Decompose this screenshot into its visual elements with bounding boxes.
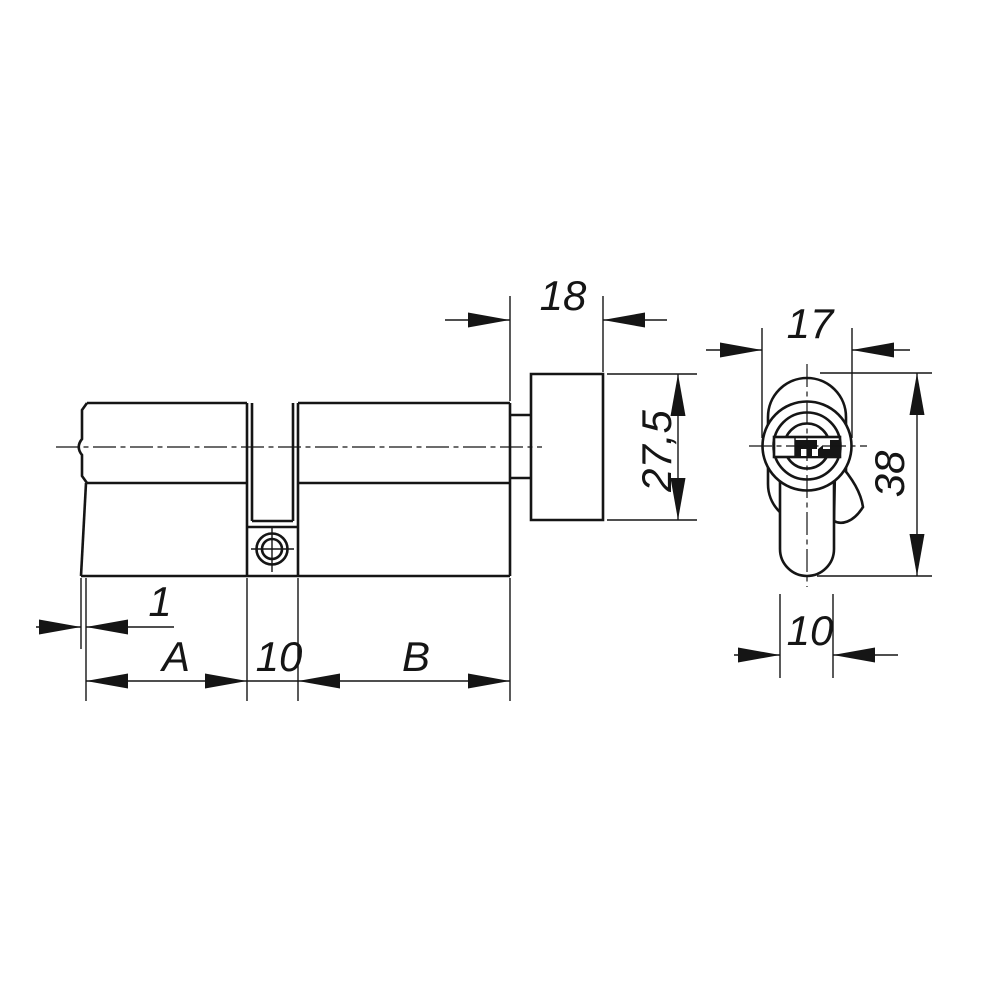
arrowhead [298, 674, 340, 689]
side-view: 18 27,5 1 [36, 272, 697, 701]
key-profile-notch [801, 449, 807, 456]
housing-left-edge [81, 483, 86, 576]
arrowhead [86, 674, 128, 689]
dim-label-cam-width: 10 [256, 633, 303, 680]
arrowhead [671, 374, 686, 416]
dim-label-face-offset: 1 [148, 578, 171, 625]
dim-label-knob-length: 18 [540, 272, 587, 319]
dim-face-offset: 1 [36, 578, 174, 649]
cylinder-dimension-drawing: 18 27,5 1 [0, 0, 1000, 1000]
cylinder-body-outline [79, 403, 510, 576]
front-view: 17 38 10 [706, 300, 932, 678]
arrowhead [603, 313, 645, 328]
fixing-screw [251, 527, 294, 572]
arrowhead [910, 534, 925, 576]
dim-label-body-diameter: 17 [787, 300, 835, 347]
screw-crosshair [251, 527, 294, 572]
cam-slot-bottom [247, 521, 298, 527]
dim-label-length-b: B [402, 633, 430, 680]
arrowhead [833, 648, 875, 663]
dim-label-knob-height: 27,5 [633, 409, 680, 492]
arrowhead [720, 343, 762, 358]
arrowhead [468, 674, 510, 689]
arrowhead [910, 373, 925, 415]
arrowhead [738, 648, 780, 663]
dim-stem-width: 10 [734, 594, 898, 678]
arrowhead [205, 674, 247, 689]
technical-drawing-canvas: 18 27,5 1 [0, 0, 1000, 1000]
key-profile-notch [812, 449, 818, 456]
arrowhead [39, 620, 81, 635]
front-face-profile [79, 403, 87, 483]
dim-knob-height: 27,5 [607, 374, 697, 520]
dim-knob-length: 18 [445, 272, 667, 401]
dim-label-length-a: A [159, 633, 190, 680]
arrowhead [468, 313, 510, 328]
arrowhead [852, 343, 894, 358]
arrowhead [86, 620, 128, 635]
dim-label-total-height: 38 [866, 450, 913, 497]
dim-label-stem-width: 10 [787, 607, 834, 654]
key-profile-notch [823, 440, 830, 449]
thumbturn-side [510, 374, 603, 520]
